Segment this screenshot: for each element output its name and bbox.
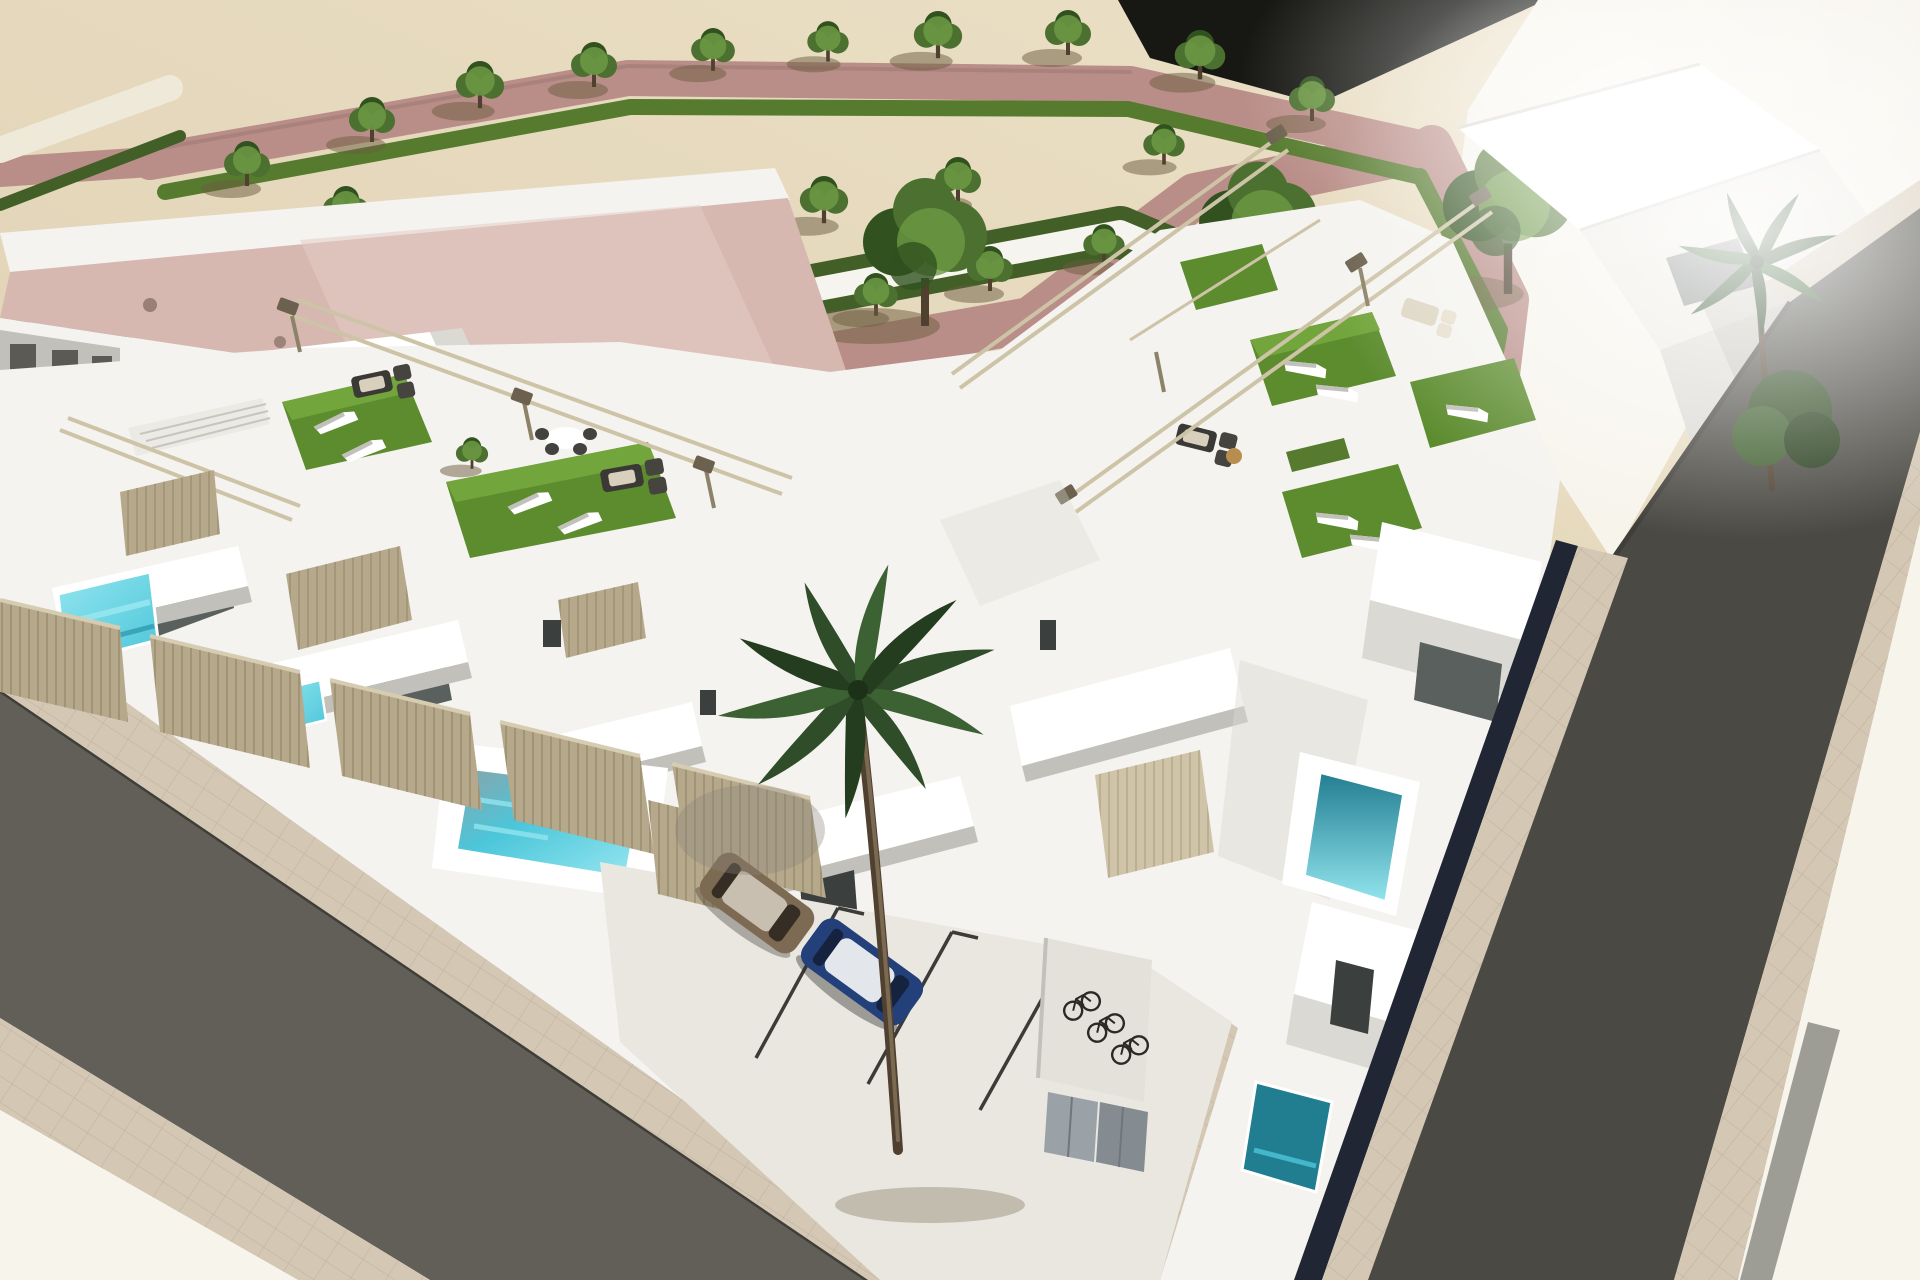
terrace-pot: [1226, 448, 1242, 464]
window-small: [543, 620, 561, 647]
render-canvas: [0, 0, 1920, 1280]
window-small: [1040, 620, 1056, 650]
window-small: [700, 690, 716, 715]
roof-vent: [274, 336, 286, 348]
plunge-pool: [1304, 772, 1404, 902]
roof-vent: [143, 298, 157, 312]
architectural-rendering: [0, 0, 1920, 1280]
palm-shadow-on-wall: [675, 785, 825, 875]
plunge-pool-shaded: [1242, 1082, 1332, 1192]
bike-shelter: [1038, 938, 1152, 1102]
rendering-stage: [0, 0, 1920, 1280]
doorway: [1330, 960, 1374, 1034]
